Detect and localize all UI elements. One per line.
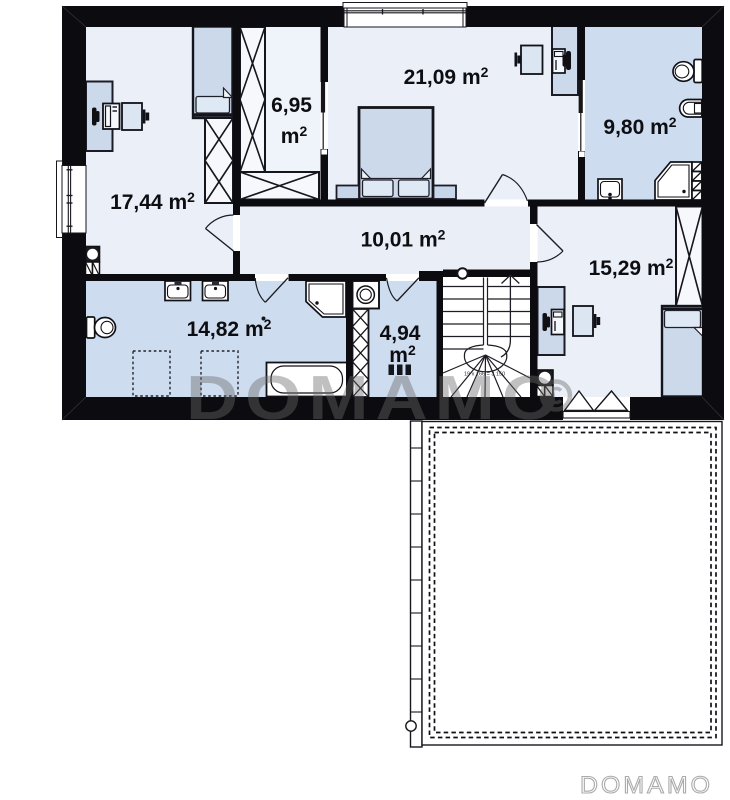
svg-text:10,01 m2: 10,01 m2 xyxy=(361,227,446,252)
svg-text:6,95: 6,95 xyxy=(271,94,312,117)
svg-text:9,80 m2: 9,80 m2 xyxy=(603,114,676,139)
svg-text:15,29 m2: 15,29 m2 xyxy=(589,255,674,280)
svg-text:17,44 m2: 17,44 m2 xyxy=(110,189,195,214)
svg-text:21,09 m2: 21,09 m2 xyxy=(404,64,489,89)
svg-text:DOMAMO: DOMAMO xyxy=(186,364,565,433)
svg-text:14,82 m2: 14,82 m2 xyxy=(187,316,272,341)
svg-text:DOMAMO: DOMAMO xyxy=(580,772,713,799)
